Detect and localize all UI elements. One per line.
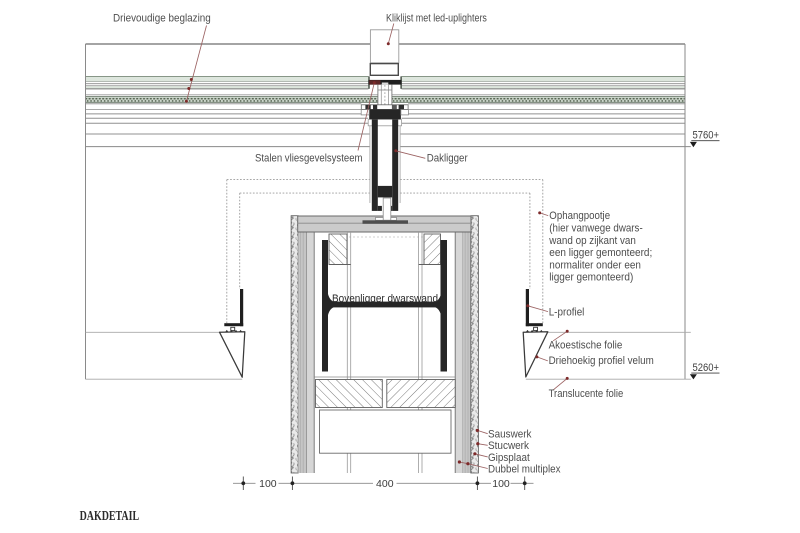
svg-text:Drievoudige beglazing: Drievoudige beglazing: [113, 13, 211, 25]
svg-text:Ophangpootje: Ophangpootje: [549, 210, 610, 222]
svg-text:L-profiel: L-profiel: [549, 306, 585, 318]
svg-text:Dubbel multiplex: Dubbel multiplex: [488, 464, 561, 476]
svg-text:wand op zijkant van: wand op zijkant van: [548, 235, 635, 247]
svg-text:Bovenligger dwarswand: Bovenligger dwarswand: [332, 293, 438, 305]
svg-text:Sauswerk: Sauswerk: [488, 428, 532, 440]
svg-text:5260+: 5260+: [693, 362, 720, 374]
svg-text:(hier vanwege dwars-: (hier vanwege dwars-: [549, 223, 643, 235]
svg-text:Stucwerk: Stucwerk: [488, 440, 529, 452]
svg-text:400: 400: [376, 478, 394, 490]
svg-text:5760+: 5760+: [693, 130, 720, 142]
svg-text:Driehoekig profiel velum: Driehoekig profiel velum: [549, 355, 654, 367]
svg-text:100: 100: [492, 478, 510, 490]
svg-text:Kliklijst met led-uplighters: Kliklijst met led-uplighters: [386, 13, 487, 25]
svg-text:een ligger gemonteerd;: een ligger gemonteerd;: [549, 247, 652, 259]
svg-text:100: 100: [259, 478, 277, 490]
svg-text:normaliter onder een: normaliter onder een: [549, 259, 641, 271]
svg-text:DAKDETAIL: DAKDETAIL: [80, 509, 140, 524]
svg-text:Dakligger: Dakligger: [427, 153, 468, 165]
svg-text:Translucente folie: Translucente folie: [549, 388, 624, 400]
svg-text:Gipsplaat: Gipsplaat: [488, 452, 530, 464]
svg-text:ligger gemonteerd): ligger gemonteerd): [549, 272, 633, 284]
svg-text:Stalen vliesgevelsysteem: Stalen vliesgevelsysteem: [255, 152, 363, 164]
svg-text:Akoestische folie: Akoestische folie: [549, 340, 623, 352]
